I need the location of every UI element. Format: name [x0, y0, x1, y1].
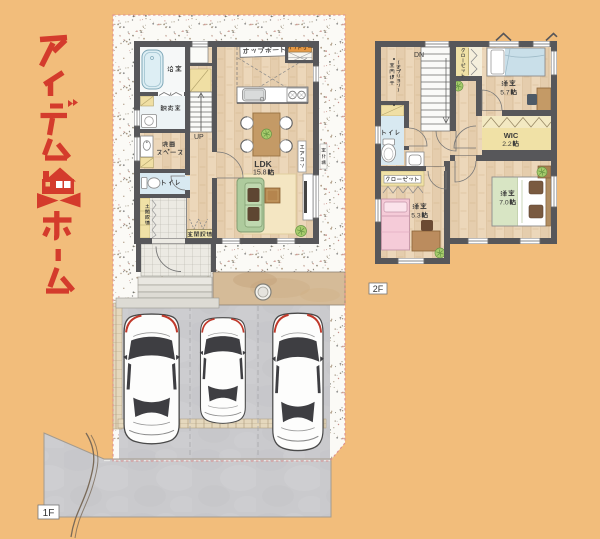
svg-text:2F: 2F	[373, 284, 384, 294]
svg-text:DN: DN	[414, 52, 424, 59]
svg-text:LDK: LDK	[254, 159, 272, 169]
svg-text:7.0: 7.0	[499, 199, 509, 206]
svg-text:5.7: 5.7	[500, 89, 510, 96]
svg-text:1F: 1F	[43, 508, 55, 519]
svg-text:5.3: 5.3	[411, 212, 421, 219]
svg-text:15.8: 15.8	[253, 170, 267, 177]
svg-text:UP: UP	[194, 134, 204, 141]
svg-text:WIC: WIC	[504, 131, 519, 140]
svg-text:2.2: 2.2	[502, 141, 512, 148]
